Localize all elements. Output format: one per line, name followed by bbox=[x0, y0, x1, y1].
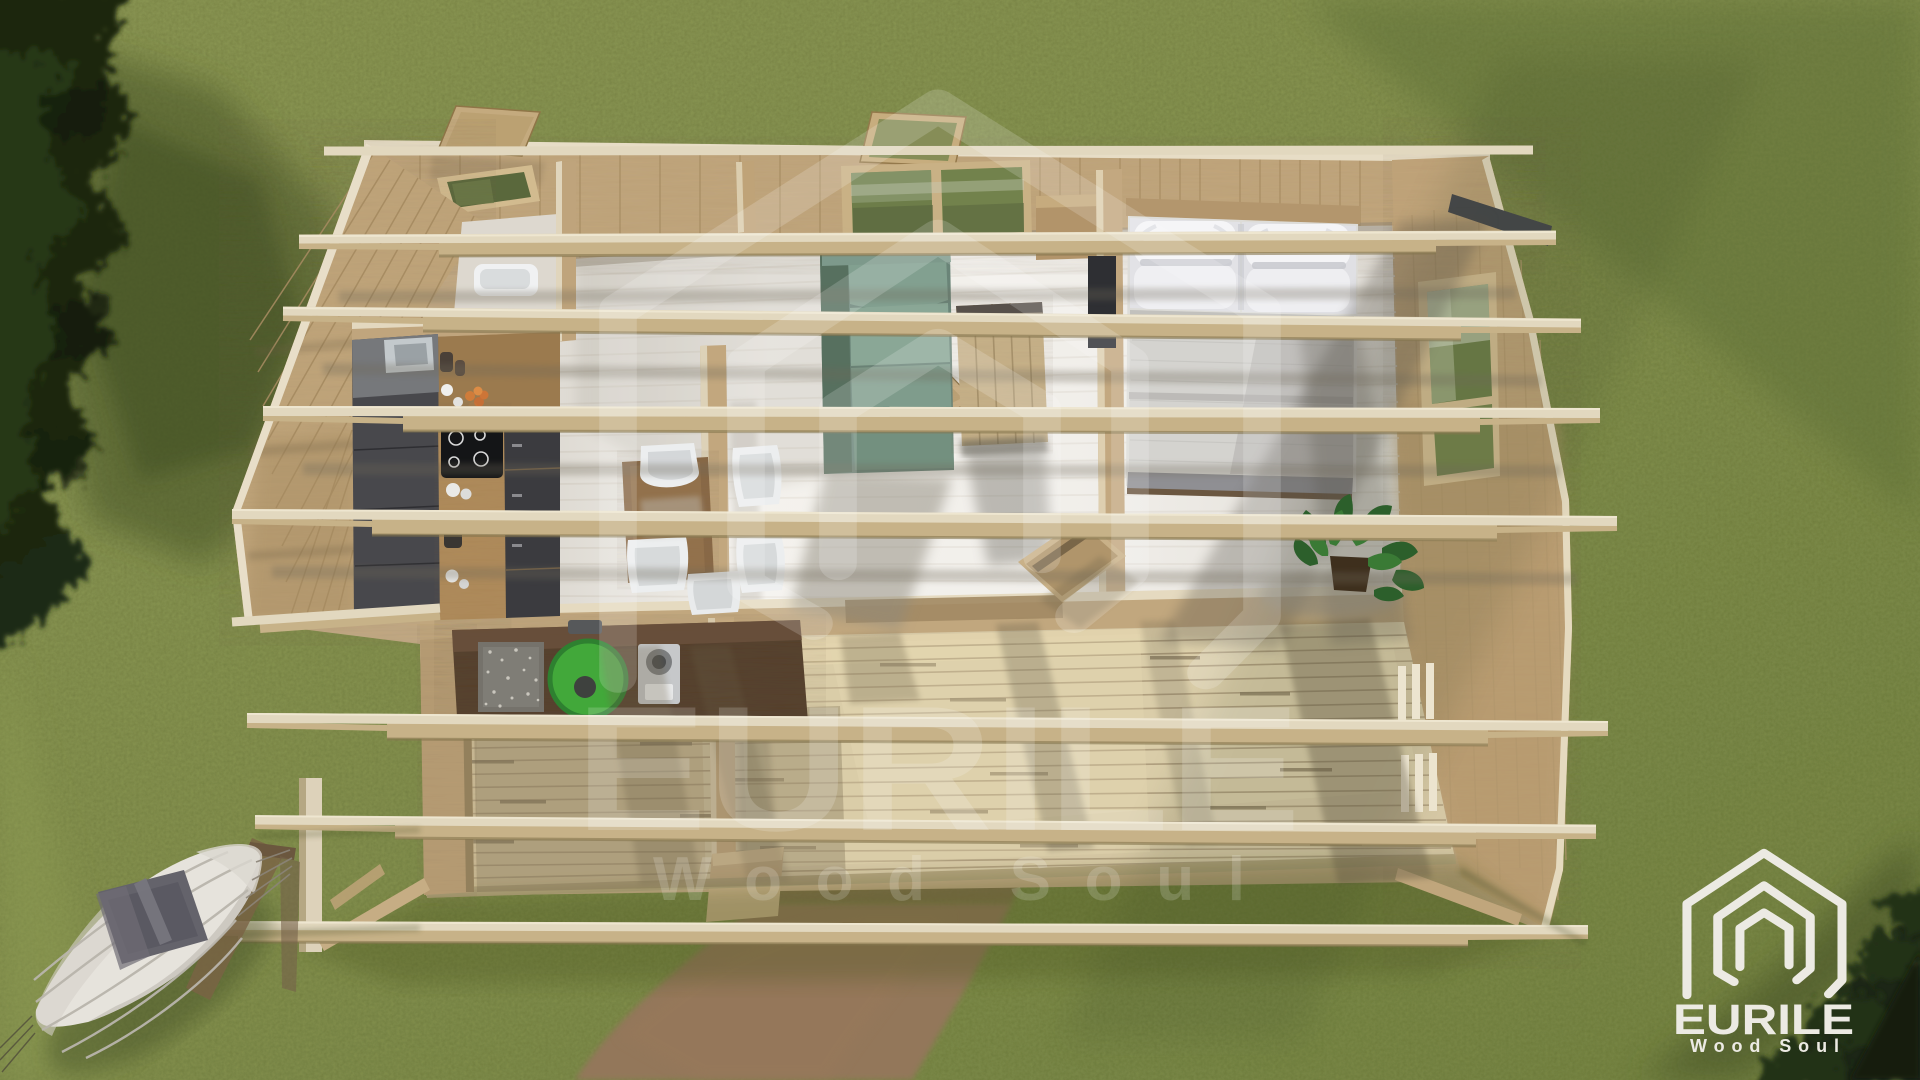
svg-text:EURILE: EURILE bbox=[575, 669, 1301, 868]
